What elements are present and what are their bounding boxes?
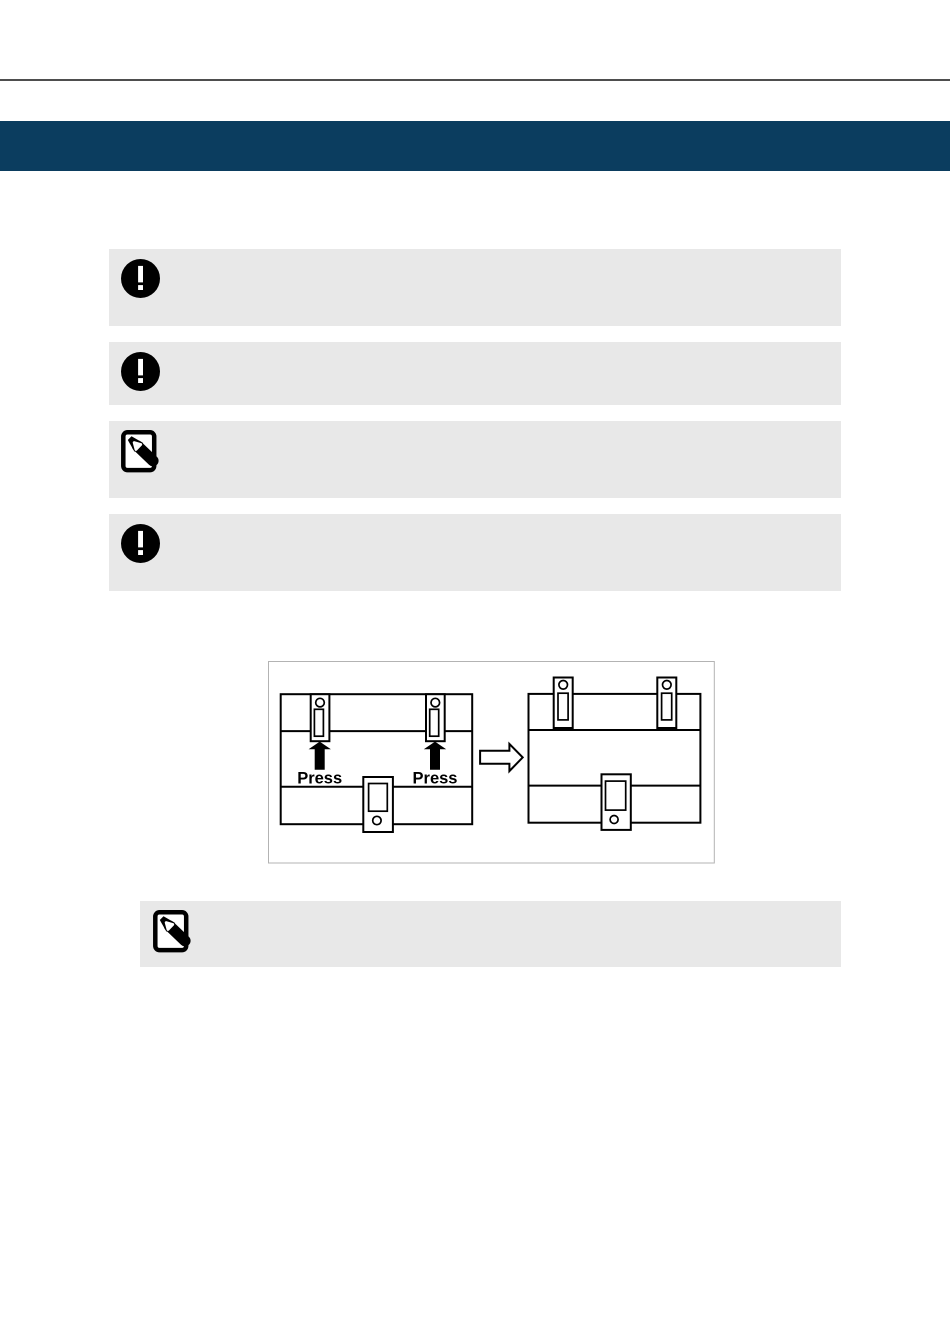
svg-text:Press: Press — [413, 770, 458, 788]
svg-text:Press: Press — [298, 770, 343, 788]
